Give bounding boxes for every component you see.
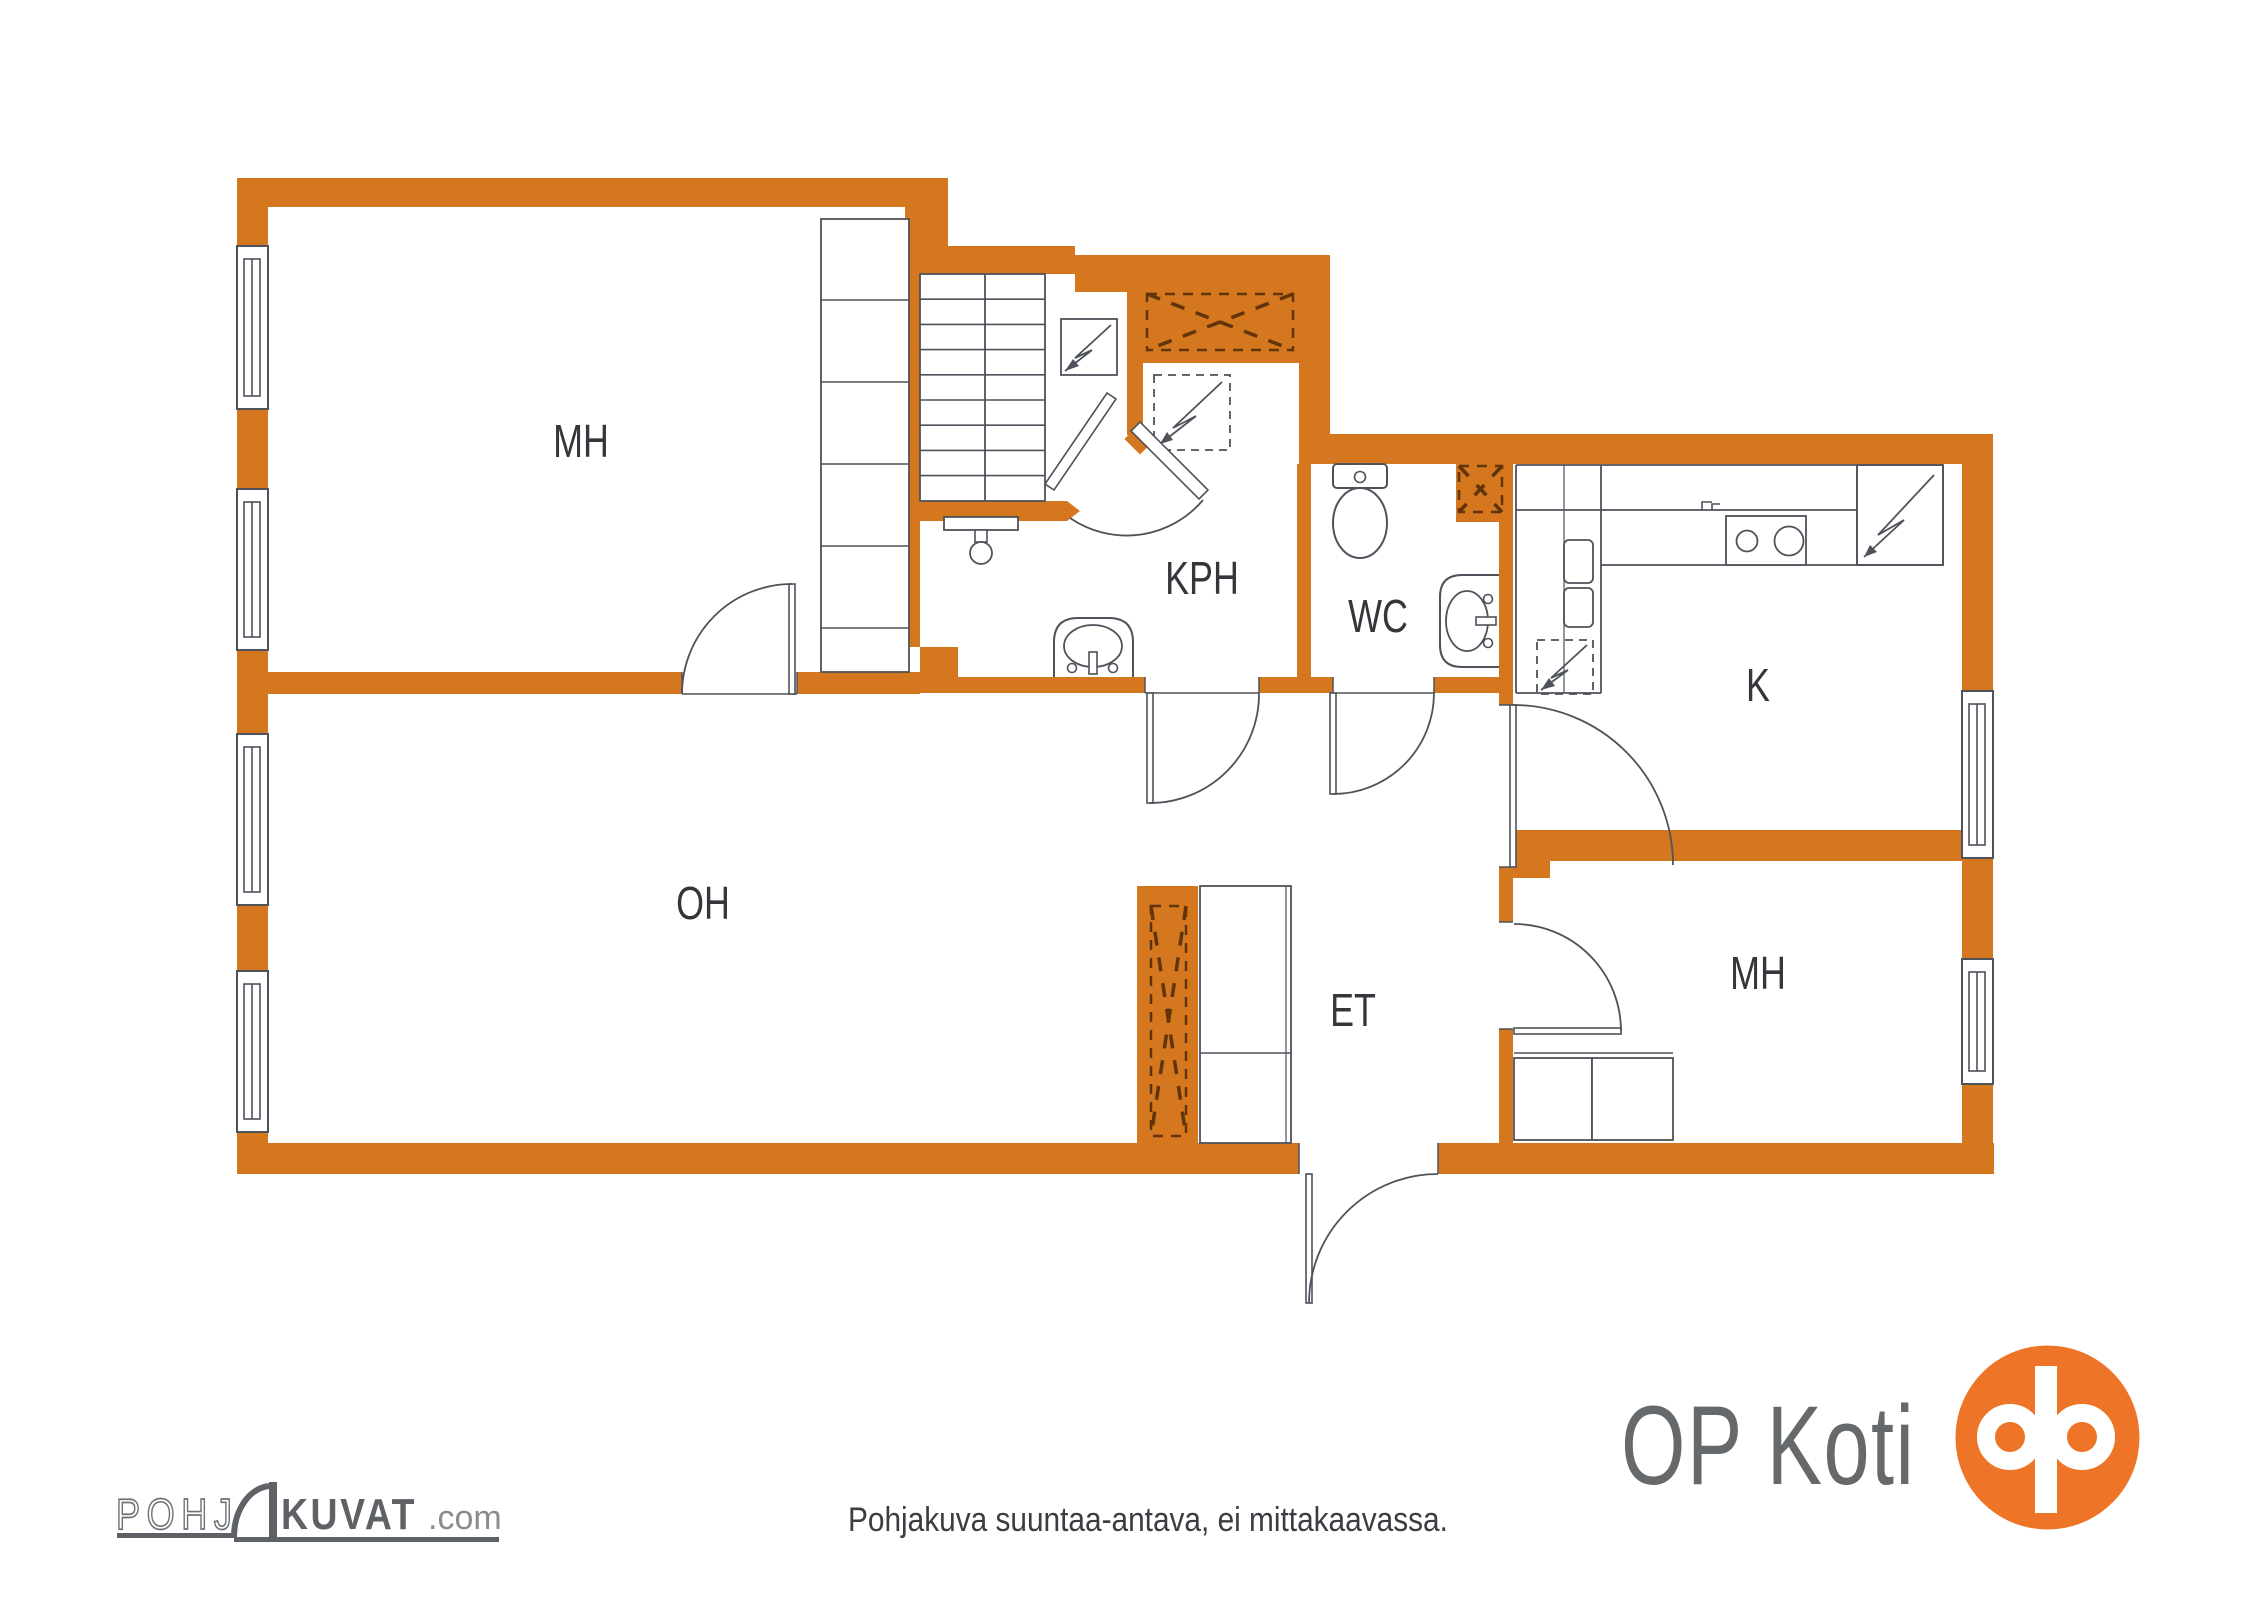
svg-text:OP Koti: OP Koti [1621, 1383, 1915, 1508]
svg-text:WC: WC [1348, 591, 1408, 642]
svg-text:MH: MH [553, 416, 609, 467]
svg-text:.com: .com [428, 1499, 502, 1537]
svg-text:ET: ET [1330, 985, 1376, 1036]
svg-text:KPH: KPH [1165, 553, 1239, 604]
svg-text:K: K [1746, 660, 1770, 711]
svg-text:POHJ: POHJ [116, 1490, 238, 1539]
svg-text:MH: MH [1730, 948, 1786, 999]
svg-text:KUVAT: KUVAT [281, 1489, 417, 1539]
svg-text:Pohjakuva suuntaa-antava, ei m: Pohjakuva suuntaa-antava, ei mittakaavas… [848, 1500, 1448, 1538]
svg-text:OH: OH [676, 878, 730, 929]
